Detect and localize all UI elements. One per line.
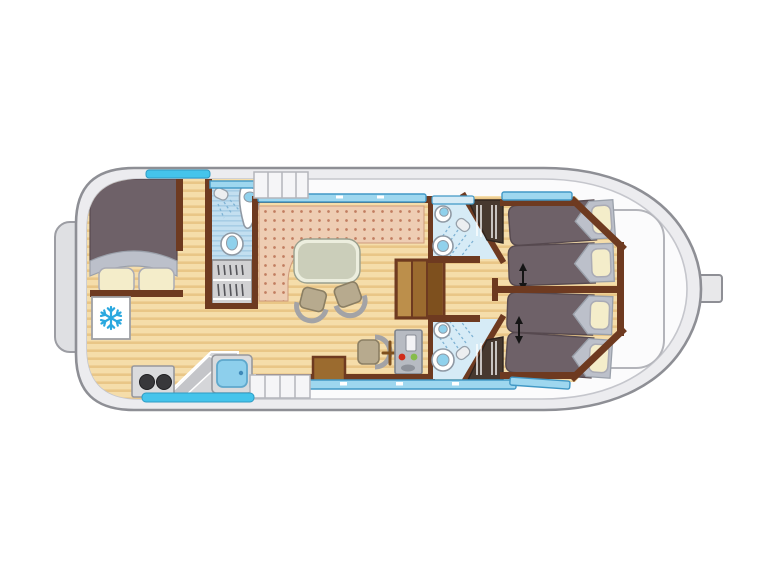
- cabin-partition-wall: [176, 179, 183, 251]
- double-bed: [90, 179, 177, 294]
- stairs: [396, 260, 444, 318]
- green-button-icon: [411, 354, 418, 361]
- toilet-icon: [221, 233, 243, 255]
- bathroom-wall: [428, 256, 480, 263]
- side-deck-steps-top: [254, 172, 308, 198]
- bathroom-wall: [205, 179, 212, 309]
- galley-sink: [212, 355, 252, 393]
- hull-window-bottom: [142, 393, 254, 402]
- bow-front-wall: [617, 242, 624, 336]
- bathroom-bow-top: [428, 196, 503, 263]
- sink-icon: [435, 206, 451, 222]
- wardrobe-aft: [212, 260, 252, 306]
- cabin-divider-cap: [492, 278, 498, 301]
- sink-icon: [434, 322, 450, 338]
- bathroom-wall: [428, 315, 480, 322]
- boat-floorplan-page: [0, 0, 768, 576]
- stove: [132, 366, 174, 397]
- faucet-icon: [239, 371, 243, 375]
- side-deck-steps-bottom: [250, 375, 310, 398]
- toilet-icon: [433, 236, 453, 256]
- red-button-icon: [399, 354, 406, 361]
- boat-floor-plan: [0, 0, 768, 576]
- bathroom-wall: [252, 196, 258, 308]
- dining-table: [294, 239, 360, 283]
- bathroom-aft: [205, 179, 259, 309]
- toilet-icon: [432, 349, 454, 371]
- bathroom-wall: [205, 303, 258, 309]
- bow-cabin-top: [508, 199, 616, 291]
- entry-step: [313, 357, 345, 383]
- bathroom-bow-bottom: [428, 315, 503, 382]
- burner-icon: [157, 375, 172, 390]
- fridge: [92, 297, 130, 339]
- single-bed: [507, 292, 613, 336]
- helm-console: [395, 330, 422, 374]
- hull-window-top: [146, 170, 210, 178]
- burner-icon: [140, 375, 155, 390]
- cabin-aft-wall: [90, 290, 183, 297]
- salon-wall: [345, 374, 434, 380]
- cabin-divider-wall: [495, 286, 622, 293]
